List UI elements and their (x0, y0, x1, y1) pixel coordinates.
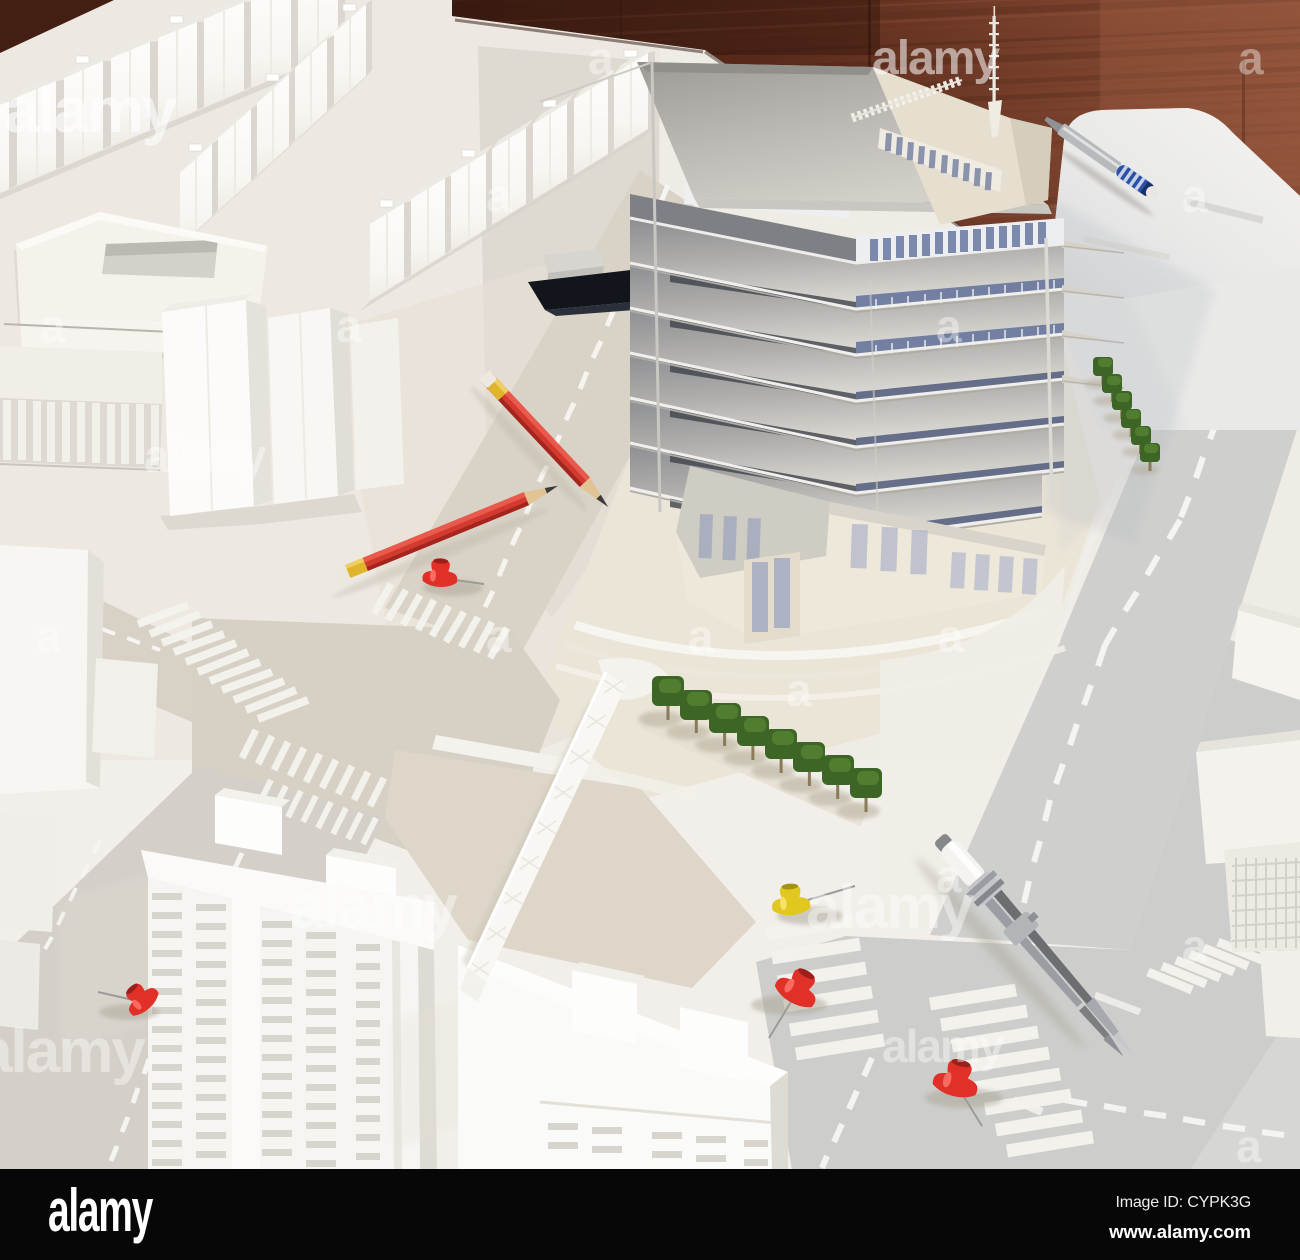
svg-text:www.alamy.com: www.alamy.com (1108, 1221, 1251, 1242)
svg-text:alamy: alamy (4, 74, 178, 146)
svg-text:a: a (1182, 170, 1208, 222)
svg-text:alamy: alamy (144, 430, 267, 482)
svg-text:alamy: alamy (882, 1020, 1005, 1072)
svg-text:a: a (486, 610, 512, 662)
svg-text:alamy: alamy (0, 1017, 146, 1086)
svg-text:alamy: alamy (290, 873, 458, 942)
svg-text:a: a (1182, 920, 1208, 972)
svg-text:alamy: alamy (48, 1177, 154, 1244)
svg-text:a: a (938, 610, 964, 662)
svg-text:a: a (1238, 32, 1264, 84)
svg-text:a: a (786, 664, 812, 716)
svg-text:a: a (36, 610, 62, 662)
svg-text:a: a (936, 300, 962, 352)
svg-text:a: a (40, 300, 66, 352)
svg-text:a: a (486, 170, 512, 222)
svg-text:a: a (588, 32, 614, 84)
svg-text:a: a (936, 850, 962, 902)
svg-text:a: a (1236, 1120, 1262, 1172)
svg-text:Image ID: CYPK3G: Image ID: CYPK3G (1115, 1194, 1251, 1211)
svg-text:a: a (336, 300, 362, 352)
svg-text:alamy: alamy (872, 32, 1000, 85)
svg-text:a: a (688, 610, 714, 662)
